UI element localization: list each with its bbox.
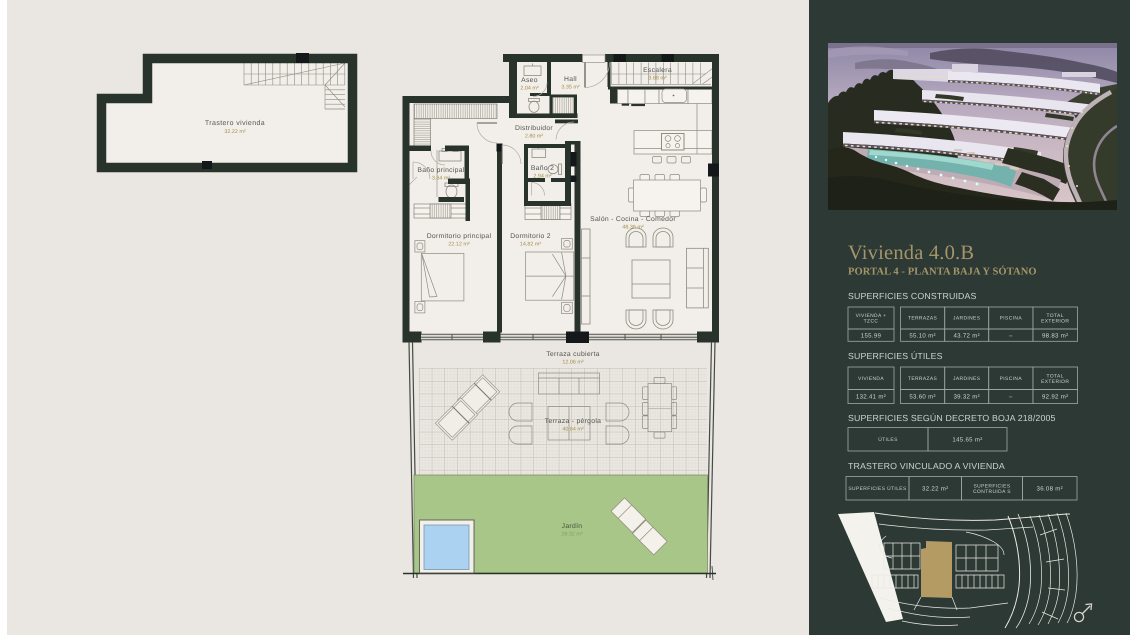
svg-text:2.94 m²: 2.94 m² <box>533 174 551 180</box>
svg-text:Trastero vivienda: Trastero vivienda <box>205 119 265 127</box>
svg-text:48.36 m²: 48.36 m² <box>622 225 643 231</box>
svg-text:VIVIENDA: VIVIENDA <box>858 376 884 382</box>
svg-text:132.41 m²: 132.41 m² <box>856 394 886 401</box>
svg-text:92.92 m²: 92.92 m² <box>1042 394 1068 401</box>
svg-text:Salón - Cocina - Comedor: Salón - Cocina - Comedor <box>590 216 676 223</box>
svg-text:36.08 m²: 36.08 m² <box>1037 485 1063 492</box>
svg-text:TRASTERO VINCULADO A VIVIENDA: TRASTERO VINCULADO A VIVIENDA <box>848 461 1005 471</box>
svg-text:SUPERFICIES ÚTILES: SUPERFICIES ÚTILES <box>848 485 907 492</box>
svg-text:29.32 m²: 29.32 m² <box>561 532 582 538</box>
svg-text:145.65 m²: 145.65 m² <box>952 436 982 443</box>
svg-text:Vivienda 4.0.B: Vivienda 4.0.B <box>848 242 974 264</box>
svg-text:98.83 m²: 98.83 m² <box>1042 332 1068 339</box>
svg-text:PISCINA: PISCINA <box>1000 376 1023 382</box>
svg-text:SUPERFICIES ÚTILES: SUPERFICIES ÚTILES <box>848 351 943 361</box>
svg-text:22.12 m²: 22.12 m² <box>448 242 469 248</box>
svg-text:3.64 m²: 3.64 m² <box>432 176 450 182</box>
svg-text:SUPERFICIES CONSTRUIDAS: SUPERFICIES CONSTRUIDAS <box>848 291 977 301</box>
svg-text:TERRAZAS: TERRAZAS <box>908 316 938 322</box>
svg-text:SUPERFICIES SEGÚN DECRETO BOJA: SUPERFICIES SEGÚN DECRETO BOJA 218/2005 <box>848 413 1056 423</box>
svg-text:Hall: Hall <box>564 76 577 83</box>
svg-text:Terraza cubierta: Terraza cubierta <box>546 351 600 358</box>
svg-text:SUPERFICIES: SUPERFICIES <box>973 483 1010 489</box>
svg-text:53.60 m²: 53.60 m² <box>909 394 935 401</box>
svg-text:Terraza - pérgola: Terraza - pérgola <box>545 418 601 425</box>
svg-text:39.32 m²: 39.32 m² <box>953 394 979 401</box>
svg-text:40.64 m²: 40.64 m² <box>562 427 583 433</box>
svg-text:32.22 m²: 32.22 m² <box>224 129 245 135</box>
svg-text:Jardín: Jardín <box>562 523 583 530</box>
svg-text:2.80 m²: 2.80 m² <box>525 134 543 140</box>
svg-text:TERRAZAS: TERRAZAS <box>908 376 938 382</box>
svg-text:Escalera: Escalera <box>643 67 672 74</box>
svg-text:Distribuidor: Distribuidor <box>515 125 553 132</box>
svg-text:Baño principal: Baño principal <box>417 167 464 174</box>
svg-text:14.82 m²: 14.82 m² <box>520 242 541 248</box>
svg-text:155.99: 155.99 <box>861 332 882 339</box>
svg-text:Dormitorio principal: Dormitorio principal <box>427 233 492 240</box>
svg-text:PORTAL 4 - PLANTA BAJA Y SÓTAN: PORTAL 4 - PLANTA BAJA Y SÓTANO <box>848 265 1037 278</box>
svg-text:55.10 m²: 55.10 m² <box>909 332 935 339</box>
svg-text:–: – <box>1009 394 1013 401</box>
svg-text:TOTAL: TOTAL <box>1047 373 1064 379</box>
svg-text:TZCC: TZCC <box>864 319 879 325</box>
svg-text:–: – <box>1009 332 1013 339</box>
svg-text:Dormitorio 2: Dormitorio 2 <box>510 233 551 240</box>
svg-text:12.06 m²: 12.06 m² <box>562 360 583 366</box>
svg-text:32.22 m²: 32.22 m² <box>922 485 948 492</box>
svg-text:Aseo: Aseo <box>521 77 538 84</box>
svg-text:JARDINES: JARDINES <box>953 316 981 322</box>
svg-text:3.35 m²: 3.35 m² <box>561 85 579 91</box>
svg-text:VIVIENDA +: VIVIENDA + <box>856 313 887 319</box>
svg-text:2.04 m²: 2.04 m² <box>520 86 538 92</box>
svg-text:PISCINA: PISCINA <box>1000 316 1023 322</box>
svg-text:JARDINES: JARDINES <box>953 376 981 382</box>
svg-text:EXTERIOR: EXTERIOR <box>1041 379 1069 385</box>
svg-text:3.68 m²: 3.68 m² <box>648 76 666 82</box>
svg-text:43.72 m²: 43.72 m² <box>953 332 979 339</box>
svg-text:TOTAL: TOTAL <box>1047 313 1064 319</box>
svg-text:EXTERIOR: EXTERIOR <box>1041 319 1069 325</box>
svg-text:ÚTILES: ÚTILES <box>878 436 898 443</box>
svg-text:Baño 2: Baño 2 <box>531 165 554 172</box>
svg-text:CONTRUIDA S: CONTRUIDA S <box>973 489 1011 495</box>
